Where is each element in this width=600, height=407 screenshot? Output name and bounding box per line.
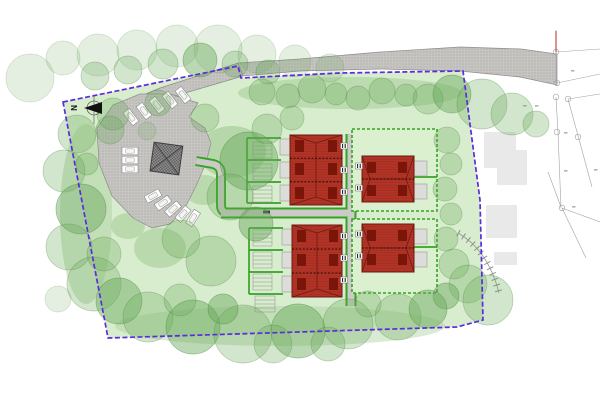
shed [282,276,293,292]
survey-line [558,132,561,208]
survey-line [557,74,600,83]
entrance-symbol [341,255,348,261]
survey-annotation-mark [594,169,598,171]
tree [433,177,457,201]
survey-annotation-mark [571,70,575,72]
tree [279,45,311,77]
survey-annotation-mark [564,132,568,134]
survey-line [556,97,558,132]
entrance-symbol [356,231,363,237]
survey-line [568,99,592,187]
existing-buildings [484,132,527,265]
existing-building [494,252,517,265]
building-block-b [292,225,342,297]
tree [164,284,196,316]
tree [463,275,513,325]
north-label: N [69,105,78,111]
shed [282,252,293,268]
site-plan-canvas: N [0,0,600,407]
car-glyph [126,149,135,153]
tree [325,83,347,105]
tree [311,327,345,361]
entrance-symbol [341,277,348,283]
car-glyph [126,167,135,171]
tree [87,237,121,271]
entrance-symbol [341,233,348,239]
tree [523,111,549,137]
tree [369,78,395,104]
car-glyph [126,158,135,162]
shed [280,162,291,178]
tree [148,49,178,79]
tree [76,153,98,175]
survey-annotation-mark [564,170,568,172]
building-block-c [362,156,414,202]
survey-line [568,94,600,99]
entrance-symbol [341,189,348,195]
tree [280,106,304,130]
tree [409,290,447,328]
building-block-d [362,224,414,272]
parking-bay [122,165,138,173]
entrance-symbol [356,253,363,259]
tree [81,62,109,90]
entrance-symbol [341,167,348,173]
tree [249,79,275,105]
tree [46,41,80,75]
tree [434,227,458,251]
survey-annotation-mark [535,105,539,107]
tree [355,291,381,317]
entrance-symbol [341,143,348,149]
tree [138,122,156,140]
tree [162,220,200,258]
entrance-symbol [356,185,363,191]
survey-line [556,49,600,52]
tree [58,115,96,153]
tree [440,153,462,175]
existing-building [484,132,527,185]
tree [440,203,462,225]
tree [298,75,326,103]
tree [346,86,370,110]
shed [282,229,293,245]
shed [414,161,427,176]
parking-bay [122,156,138,164]
survey-line [548,172,561,207]
survey-annotation-mark [572,206,576,208]
site-plan-page: N [0,0,600,407]
parking-bay [122,147,138,155]
shed [414,229,427,244]
shed [414,184,427,199]
tree [276,84,300,108]
tree [239,207,273,241]
shed [280,139,291,155]
tree [252,114,282,144]
tree [45,286,71,312]
tree [434,127,460,153]
building-block-a [290,135,342,205]
tree [254,325,292,363]
tree [222,51,248,77]
bin-store [150,142,183,175]
existing-building [486,205,517,238]
shed [414,252,427,267]
tree [114,56,142,84]
shed [280,185,291,201]
survey-station [554,129,560,135]
tree [191,104,219,132]
tree [208,294,238,324]
tree [145,90,171,116]
entrance-symbol [356,163,363,169]
